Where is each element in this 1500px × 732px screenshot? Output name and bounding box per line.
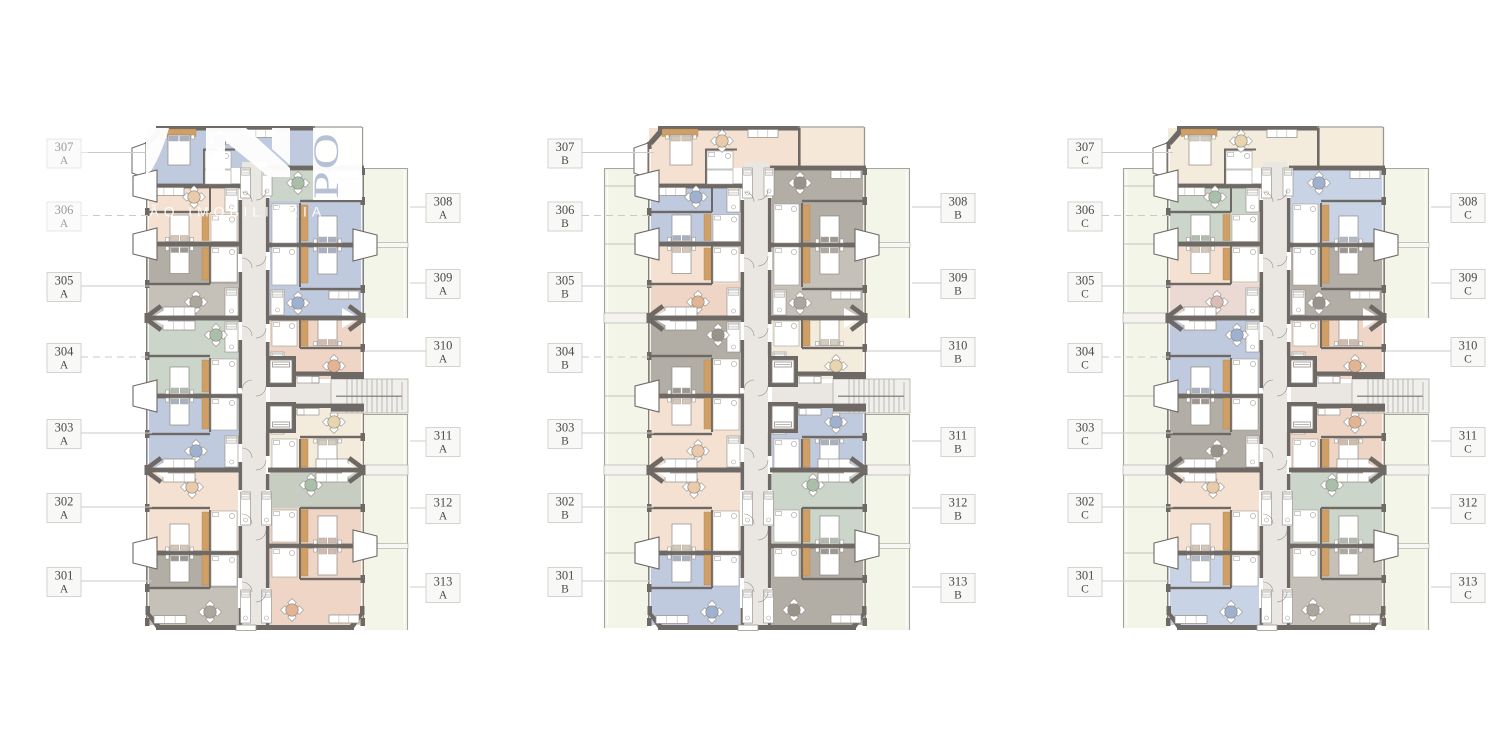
svg-text:313: 313 [949,575,968,589]
svg-text:C: C [1464,444,1472,456]
svg-text:306: 306 [556,203,575,217]
svg-text:B: B [561,155,569,167]
svg-text:A: A [60,584,69,596]
svg-text:B: B [561,289,569,301]
svg-text:C: C [1464,511,1472,523]
svg-text:312: 312 [434,496,453,510]
svg-text:312: 312 [949,496,968,510]
svg-text:308: 308 [1459,195,1478,209]
svg-text:C: C [1464,210,1472,222]
svg-text:B: B [954,511,962,523]
svg-text:309: 309 [949,271,968,285]
svg-text:A: A [439,444,448,456]
svg-text:307: 307 [1076,140,1095,154]
svg-text:304: 304 [556,345,576,359]
svg-text:A: A [439,590,448,602]
svg-text:PO: PO [307,131,347,199]
svg-text:303: 303 [556,421,575,435]
svg-text:303: 303 [1076,421,1095,435]
svg-text:305: 305 [556,274,575,288]
svg-text:311: 311 [434,429,452,443]
svg-text:C: C [1081,436,1089,448]
svg-text:312: 312 [1459,496,1478,510]
svg-text:B: B [561,218,569,230]
svg-text:C: C [1081,360,1089,372]
svg-text:305: 305 [55,274,74,288]
svg-text:302: 302 [55,495,74,509]
svg-text:302: 302 [556,495,575,509]
svg-text:313: 313 [434,575,453,589]
svg-text:306: 306 [1076,203,1095,217]
svg-text:C: C [1464,354,1472,366]
svg-text:301: 301 [1076,569,1095,583]
svg-text:B: B [954,590,962,602]
svg-text:310: 310 [1459,339,1478,353]
svg-text:303: 303 [55,421,74,435]
svg-text:B: B [954,210,962,222]
svg-text:310: 310 [949,339,968,353]
svg-text:A: A [439,286,448,298]
svg-text:A: A [60,436,69,448]
svg-text:302: 302 [1076,495,1095,509]
svg-text:ÃO IMOBILIÁRIA: ÃO IMOBILIÁRIA [150,204,327,220]
svg-text:C: C [1081,510,1089,522]
svg-text:311: 311 [1459,429,1477,443]
svg-text:A: A [60,510,69,522]
svg-text:301: 301 [55,569,74,583]
svg-text:308: 308 [434,195,453,209]
svg-text:A: A [439,210,448,222]
svg-text:304: 304 [55,345,75,359]
svg-text:B: B [954,354,962,366]
svg-text:B: B [561,584,569,596]
svg-text:301: 301 [556,569,575,583]
svg-text:311: 311 [949,429,967,443]
svg-text:304: 304 [1076,345,1096,359]
svg-text:B: B [561,360,569,372]
svg-text:308: 308 [949,195,968,209]
svg-text:309: 309 [1459,271,1478,285]
svg-text:B: B [954,286,962,298]
svg-text:C: C [1464,590,1472,602]
svg-text:309: 309 [434,271,453,285]
svg-text:A: A [60,289,69,301]
svg-text:C: C [1081,584,1089,596]
svg-text:313: 313 [1459,575,1478,589]
svg-text:A: A [439,511,448,523]
svg-text:B: B [561,510,569,522]
svg-text:305: 305 [1076,274,1095,288]
svg-text:310: 310 [434,339,453,353]
svg-text:C: C [1081,289,1089,301]
svg-text:307: 307 [556,140,575,154]
svg-text:C: C [1464,286,1472,298]
svg-text:C: C [1081,155,1089,167]
svg-text:A: A [439,354,448,366]
svg-text:A: A [60,360,69,372]
svg-text:B: B [954,444,962,456]
svg-text:B: B [561,436,569,448]
svg-text:C: C [1081,218,1089,230]
